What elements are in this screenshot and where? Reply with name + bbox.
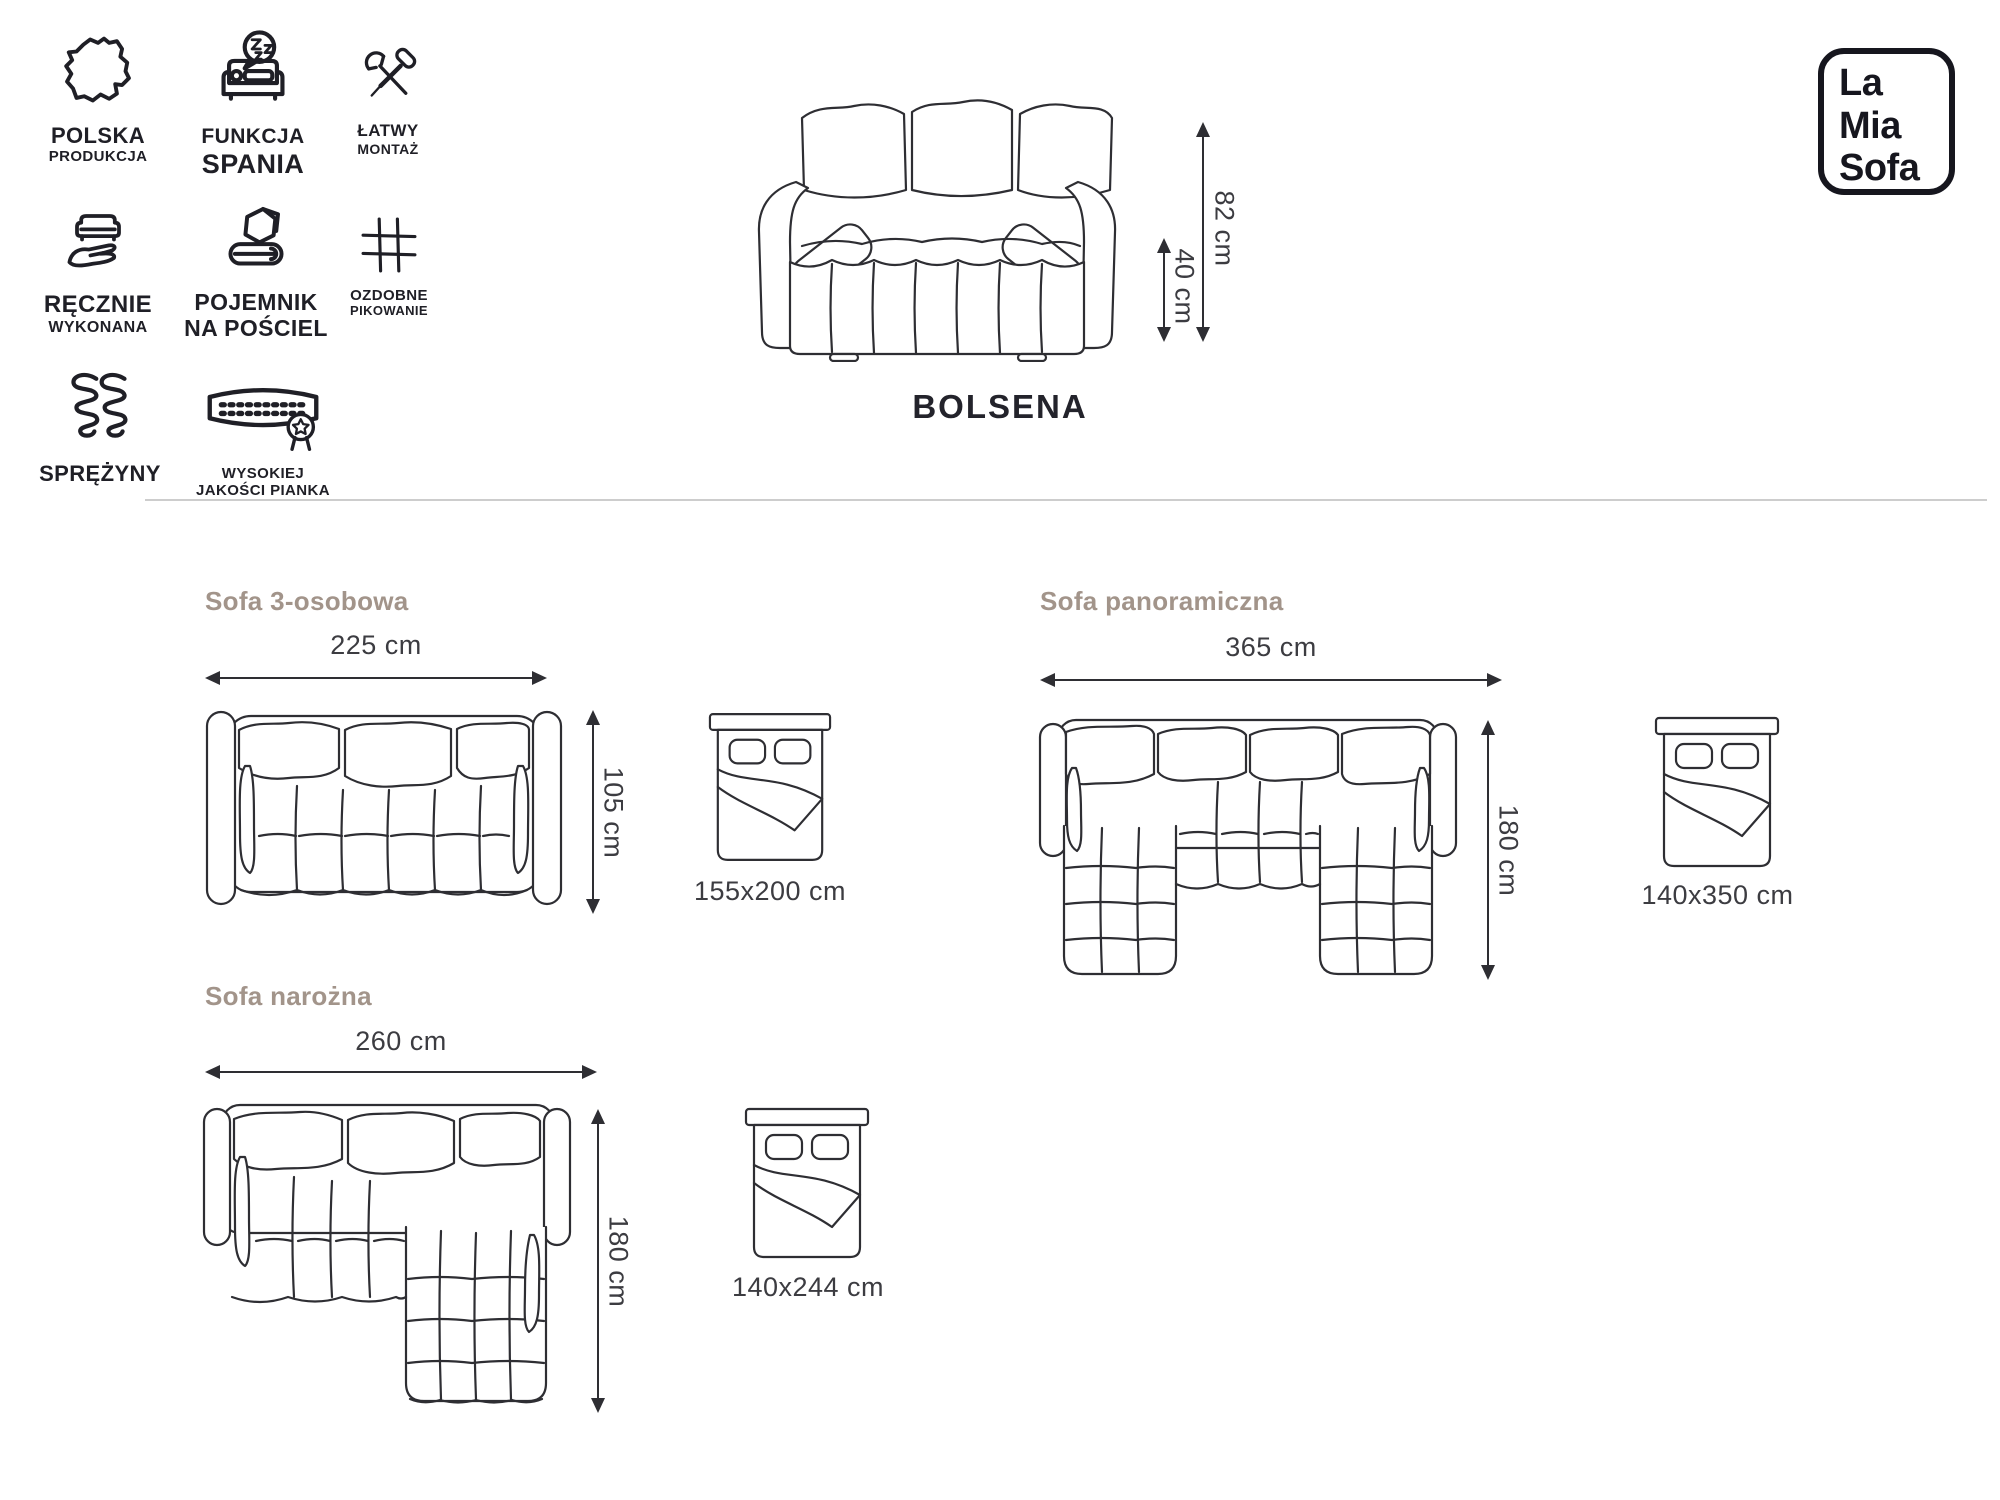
bed-size-label: 140x350 cm <box>1600 880 1835 911</box>
easy-assembly-icon <box>351 40 425 114</box>
quilting-icon <box>354 210 424 280</box>
depth-dimension-arrow <box>597 1111 599 1411</box>
section-title-sofa-3-osobowa: Sofa 3-osobowa <box>205 586 409 617</box>
feature-label: RĘCZNIE <box>44 291 152 319</box>
sofa-narozna-top-view <box>202 1101 572 1419</box>
depth-dimension-label: 180 cm <box>603 1212 634 1312</box>
sofa-panoramiczna-top-view <box>1036 716 1460 984</box>
seat-height-dimension-arrow <box>1163 240 1165 340</box>
feature-label: SPRĘŻYNY <box>39 461 161 486</box>
sleep-function-icon <box>207 26 299 118</box>
bed-size-icon <box>706 708 834 866</box>
feature-decorative-quilting: OZDOBNEPIKOWANIE <box>330 210 448 319</box>
divider <box>145 499 1987 501</box>
feature-sleep-function: FUNKCJASPANIA <box>178 26 328 180</box>
springs-icon <box>53 360 147 454</box>
brand-logo: La Mia Sofa <box>1818 48 1955 195</box>
sofa-front-view-drawing <box>732 82 1142 362</box>
feature-foam-quality: WYSOKIEJJAKOŚCI PIANKA <box>168 366 358 500</box>
feature-label: WYSOKIEJ <box>196 465 330 482</box>
seat-height-dimension-label: 40 cm <box>1169 237 1200 337</box>
feature-label: POLSKA <box>49 123 148 148</box>
bed-size-label: 155x200 cm <box>655 876 885 907</box>
poland-map-icon <box>55 30 141 116</box>
feature-label: FUNKCJA <box>201 125 304 149</box>
section-title-sofa-panoramiczna: Sofa panoramiczna <box>1040 586 1284 617</box>
foam-quality-icon <box>199 366 327 458</box>
feature-bedding-storage: POJEMNIKNA POŚCIEL <box>176 194 336 342</box>
depth-dimension-arrow <box>1487 722 1489 978</box>
product-title: BOLSENA <box>850 388 1150 426</box>
height-dimension-label: 82 cm <box>1209 179 1240 279</box>
depth-dimension-label: 105 cm <box>598 763 629 863</box>
bed-size-icon <box>1652 712 1782 872</box>
bed-size-icon <box>741 1103 873 1263</box>
depth-dimension-arrow <box>592 712 594 912</box>
feature-label: POJEMNIK <box>184 289 328 315</box>
width-dimension-label: 260 cm <box>301 1026 501 1057</box>
depth-dimension-label: 180 cm <box>1493 801 1524 901</box>
width-dimension-arrow <box>207 677 545 679</box>
bedding-storage-icon <box>212 194 300 282</box>
feature-label: ŁATWY <box>357 121 418 141</box>
feature-label: OZDOBNE <box>350 287 428 304</box>
section-title-sofa-narozna: Sofa narożna <box>205 981 372 1012</box>
brand-logo-line: Mia <box>1839 105 1949 148</box>
brand-logo-line: Sofa <box>1839 147 1949 190</box>
handmade-icon <box>56 200 140 284</box>
bed-size-label: 140x244 cm <box>688 1272 928 1303</box>
width-dimension-label: 225 cm <box>276 630 476 661</box>
feature-poland-production: POLSKAPRODUKCJA <box>28 30 168 166</box>
width-dimension-arrow <box>207 1071 595 1073</box>
width-dimension-label: 365 cm <box>1171 632 1371 663</box>
brand-logo-line: La <box>1839 62 1949 105</box>
height-dimension-arrow <box>1202 124 1204 340</box>
feature-springs: SPRĘŻYNY <box>30 360 170 486</box>
feature-easy-assembly: ŁATWYMONTAŻ <box>328 40 448 157</box>
sofa-3-osobowa-top-view <box>203 706 565 914</box>
feature-handmade: RĘCZNIEWYKONANA <box>28 200 168 337</box>
spec-sheet: POLSKAPRODUKCJA FUNKCJASPANIA ŁATWYMONT <box>0 0 2000 1500</box>
width-dimension-arrow <box>1042 679 1500 681</box>
